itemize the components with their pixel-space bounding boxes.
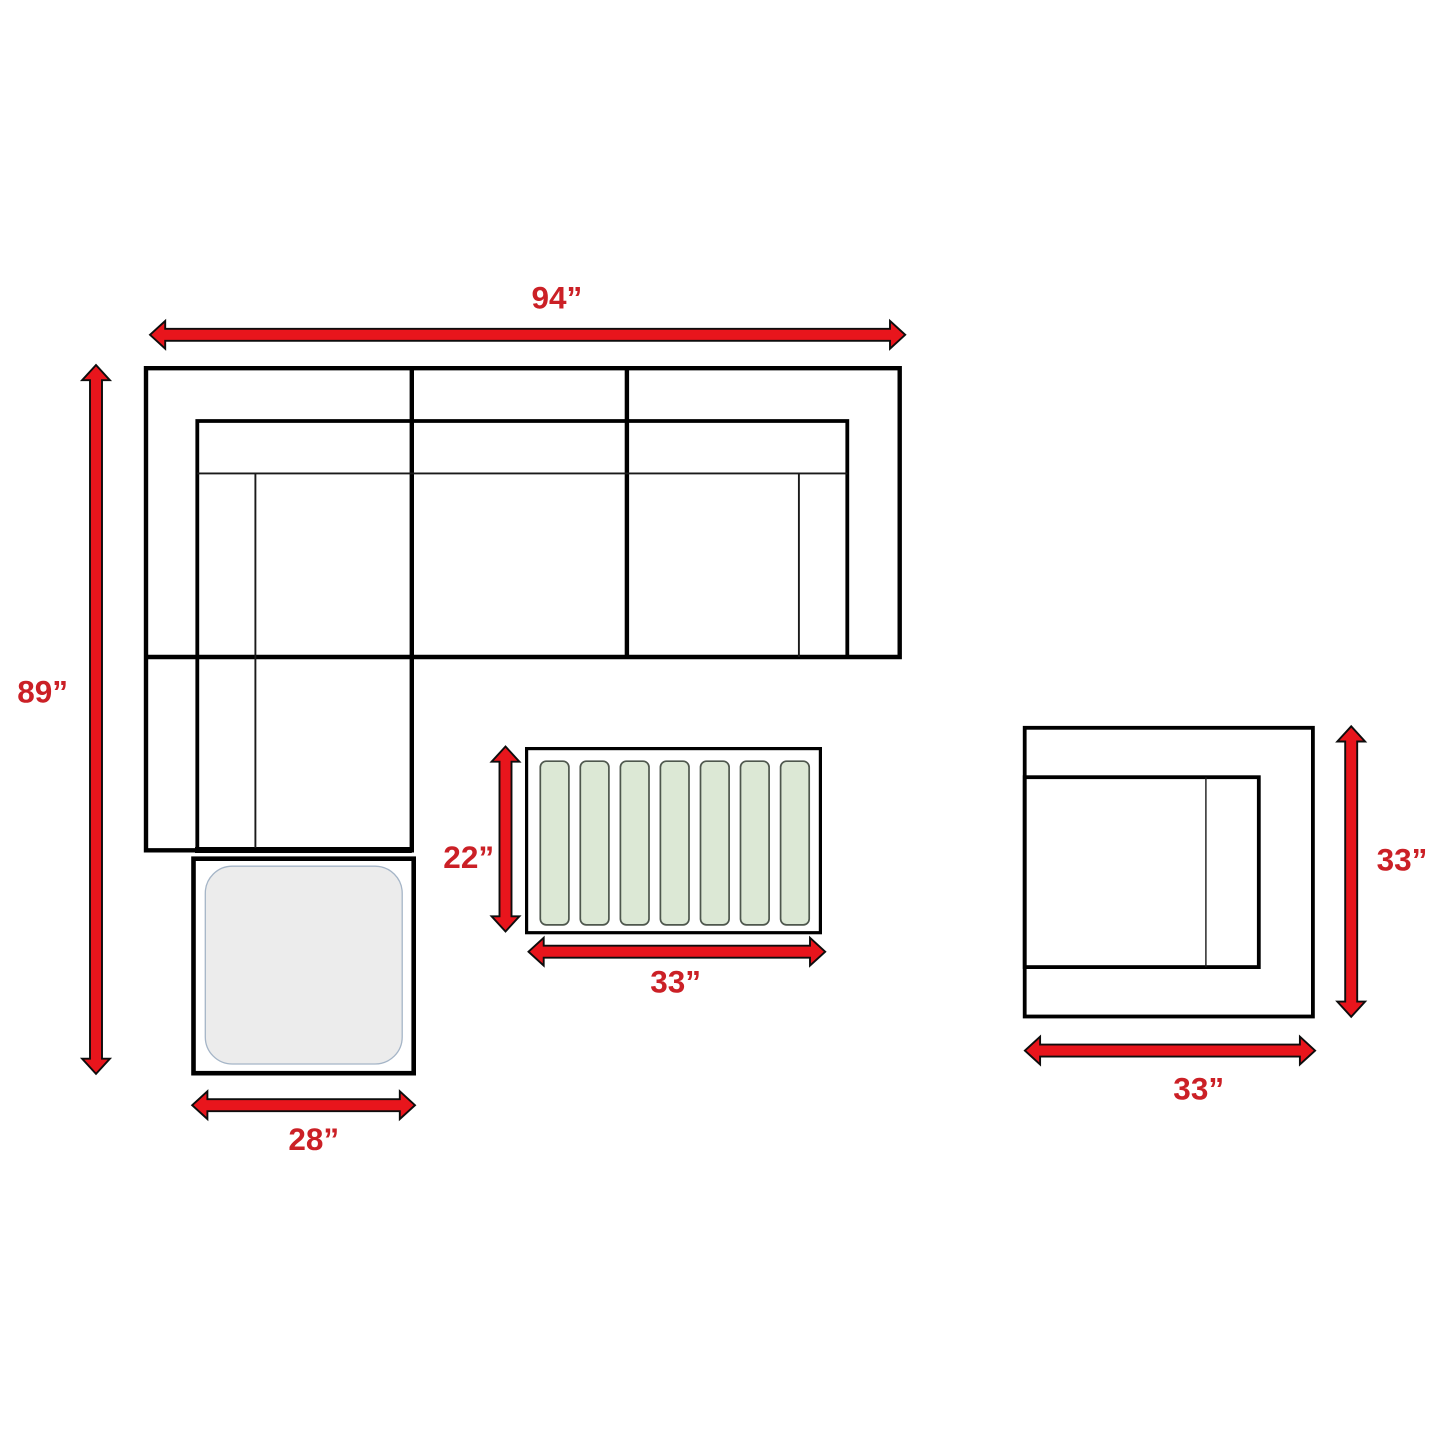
svg-text:33”: 33” bbox=[1377, 842, 1428, 878]
svg-text:94”: 94” bbox=[532, 280, 583, 316]
svg-text:33”: 33” bbox=[650, 964, 701, 1000]
svg-text:28”: 28” bbox=[288, 1121, 339, 1157]
svg-text:33”: 33” bbox=[1173, 1070, 1224, 1106]
svg-text:89”: 89” bbox=[17, 674, 68, 710]
svg-text:22”: 22” bbox=[443, 839, 494, 875]
